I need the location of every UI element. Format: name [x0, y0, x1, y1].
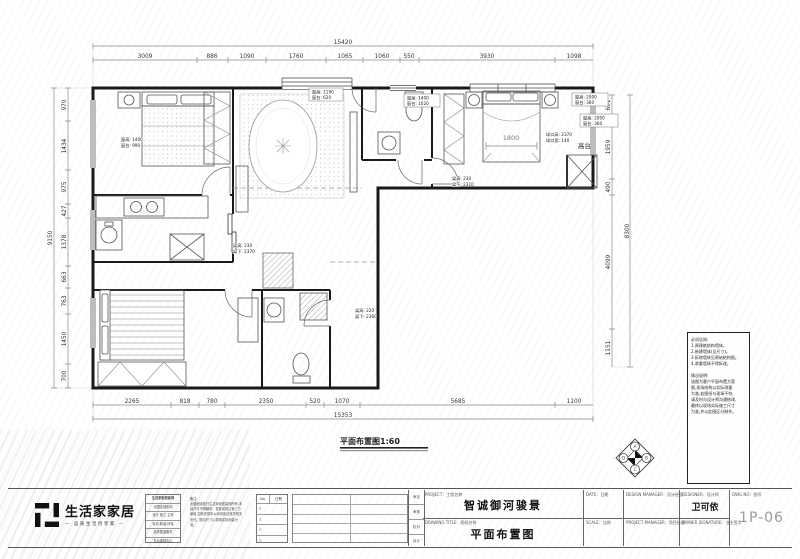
beam-note: 梁下: 2310 — [452, 181, 474, 188]
general-notes-box: 必须告知: 1.原建筑结构墙体。 2.新建墙体(见尺寸)。 3.拆除墙体见原始结… — [687, 332, 750, 484]
beam-note: 梁下: 2370 — [233, 248, 255, 255]
owner-signature-cell: OWNER SIGNATURE：业主签字 — [679, 518, 730, 546]
company-info-row: 售后保障中心 — [146, 538, 180, 546]
dim-top-seg: 886 — [206, 54, 217, 60]
dim-top-seg: 1760 — [289, 54, 304, 60]
dim-bottom-seg: 520 — [309, 399, 320, 405]
date-label: DATE：日期 — [586, 492, 608, 498]
dim-right-seg: 1151 — [606, 340, 612, 355]
logo-icon — [35, 503, 59, 527]
compass-letter-n: A — [634, 444, 637, 449]
bedroom-bottom — [98, 290, 258, 386]
dim-bottom-seg: 5685 — [451, 399, 466, 405]
scale-cell: SCALE：比例 — [583, 518, 624, 546]
master-bedroom — [118, 92, 230, 166]
date-cell: DATE：日期 — [583, 490, 624, 519]
dim-left-seg: 700 — [62, 370, 68, 381]
rev-row: △ — [257, 515, 287, 526]
hall-cabinet — [263, 253, 293, 288]
designer-name: 卫可依 — [680, 500, 730, 513]
dim-bottom-seg: 1070 — [335, 399, 350, 405]
bed-width-dim — [486, 142, 537, 150]
dim-bottom-seg: 818 — [179, 399, 190, 405]
compass-letter-w: D — [622, 456, 625, 461]
beam-note: 梁高: 220 — [355, 307, 374, 314]
company-info-row: 全国连锁机构 — [146, 504, 180, 513]
window-note: 窗高: 1400 — [121, 136, 143, 143]
dim-left-seg: 1450 — [62, 331, 68, 346]
designer-label: DESIGNER：设计师 — [682, 492, 719, 498]
signature-grid — [292, 494, 408, 543]
dim-left-seg: 1434 — [62, 138, 68, 153]
window-note: 窗台: 1020 — [407, 100, 429, 107]
dim-bottom-seg: 2265 — [125, 399, 140, 405]
role-cell: 设计 — [409, 535, 424, 548]
window-note: 窗台: 360 — [575, 99, 594, 106]
window-note: 窗台: 360 — [583, 120, 602, 127]
rev-row: △ — [257, 536, 287, 546]
dim-right-seg: 490 — [606, 181, 612, 192]
dim-top-seg: 1065 — [338, 54, 353, 60]
dwg-no-label: DWG NO：图号 — [732, 492, 762, 498]
dim-right-seg: 4099 — [606, 254, 612, 269]
logo-tagline: — 品质生活创享家 — — [65, 521, 125, 527]
rev-col-no: No. — [257, 495, 270, 503]
dim-top-seg: 1098 — [567, 54, 582, 60]
dim-left-seg: 763 — [62, 295, 68, 306]
dim-top-seg: 1060 — [375, 54, 390, 60]
dwg-no-cell: DWG NO：图号 1P-06 — [729, 490, 793, 546]
compass-letter-s: C — [634, 467, 637, 472]
dwg-no-value: 1P-06 — [730, 510, 793, 526]
dim-top-seg: 3930 — [480, 54, 495, 60]
design-manager-label: DESIGN MANAGER：设计经理 — [626, 492, 683, 498]
rev-row: △ — [257, 504, 287, 515]
drawing-title-cell: DRAWING TITLE：图纸名称 平面布置图 — [423, 518, 583, 546]
beam-note: 梁高: 230 — [452, 175, 471, 182]
footer-remark: 备注: 此图纸版权归生活家家居装饰所有,未经许可不得翻印、复制或转让第三方使用,… — [190, 497, 244, 528]
project-cell: PROJECT：工程名称 智诚御河骏景 — [423, 490, 583, 519]
beam-note: 梁下: 2360 — [355, 313, 377, 320]
role-cell: 审定 — [409, 490, 424, 505]
company-logo: 生活家家居 — 品质生活创享家 — — [35, 499, 145, 539]
design-manager-cell: DESIGN MANAGER：设计经理 — [623, 490, 680, 519]
designer-cell: DESIGNER：设计师 卫可依 — [679, 490, 730, 519]
logo-name: 生活家家居 — [65, 501, 135, 520]
elevation-index-symbol: A B C D — [616, 439, 654, 477]
plan-title-block: 平面布置图1:60 — [340, 436, 428, 451]
company-info-row: 生活家家居装饰 — [146, 495, 180, 504]
kitchen — [96, 196, 236, 260]
main-title-table: PROJECT：工程名称 智诚御河骏景 DRAWING TITLE：图纸名称 平… — [423, 490, 792, 546]
window-note: 窗台: 990 — [121, 142, 140, 149]
dim-bottom-seg: 780 — [206, 399, 217, 405]
dim-left-seg: 663 — [62, 271, 68, 282]
project-manager-label: PROJECT MANAGER：项目经理 — [626, 520, 685, 526]
living-room — [236, 94, 357, 212]
scale-label: SCALE：比例 — [586, 520, 611, 526]
floor-plan-canvas: 15420 3009 886 1090 1760 1065 1060 550 3… — [0, 0, 800, 486]
dim-bottom-seg: 1100 — [567, 399, 582, 405]
dim-left-seg: 975 — [62, 181, 68, 192]
dim-left-seg: 970 — [62, 99, 68, 110]
opening-note: 垛口高: 2370 — [546, 131, 572, 138]
company-info-row: 品质整装服务 — [146, 529, 180, 538]
dim-bottom-seg: 2350 — [259, 399, 274, 405]
dim-top-overall: 15420 — [334, 40, 353, 46]
dim-bottom-overall: 15353 — [334, 413, 353, 419]
dim-left-overall: 9150 — [48, 230, 54, 245]
plan-title: 平面布置图1:60 — [340, 436, 400, 446]
project-name: 智诚御河骏景 — [423, 497, 583, 513]
rev-row: △ — [257, 525, 287, 536]
compass-letter-e: B — [645, 456, 648, 461]
drawing-title-value: 平面布置图 — [423, 526, 583, 542]
dim-top-seg: 1090 — [240, 54, 255, 60]
dim-right-overall: 8300 — [625, 223, 631, 238]
company-info-table: 生活家家居装饰 全国连锁机构 设计·施工·主材 家具·软装·环保 品质整装服务 … — [145, 494, 181, 543]
opening-note: 垛口宽: 140 — [546, 137, 570, 144]
revision-table: No. 日期 △ △ △ △ — [256, 494, 288, 543]
dim-left-seg: 1378 — [62, 234, 68, 249]
role-cell: 校对 — [409, 520, 424, 535]
project-manager-cell: PROJECT MANAGER：项目经理 — [623, 518, 680, 546]
dim-top-seg: 550 — [403, 54, 414, 60]
dim-top-seg: 3009 — [138, 54, 153, 60]
role-cell: 审核 — [409, 505, 424, 520]
rev-col-date: 日期 — [270, 495, 287, 503]
bed-width-label: 1800 — [503, 134, 520, 142]
dim-left-seg: 427 — [62, 205, 68, 216]
title-block: 生活家家居 — 品质生活创享家 — 生活家家居装饰 全国连锁机构 设计·施工·主… — [8, 488, 792, 548]
platform-label: 高台 — [578, 141, 591, 150]
company-info-row: 家具·软装·环保 — [146, 521, 180, 530]
window-note: 窗台: 620 — [312, 94, 331, 101]
beam-note: 梁高: 230 — [233, 242, 252, 249]
bathroom-bottom — [264, 293, 327, 383]
drawing-sheet: 15420 3009 886 1090 1760 1065 1060 550 3… — [0, 0, 800, 559]
dim-right-seg: 1959 — [606, 139, 612, 154]
company-info-row: 设计·施工·主材 — [146, 512, 180, 521]
